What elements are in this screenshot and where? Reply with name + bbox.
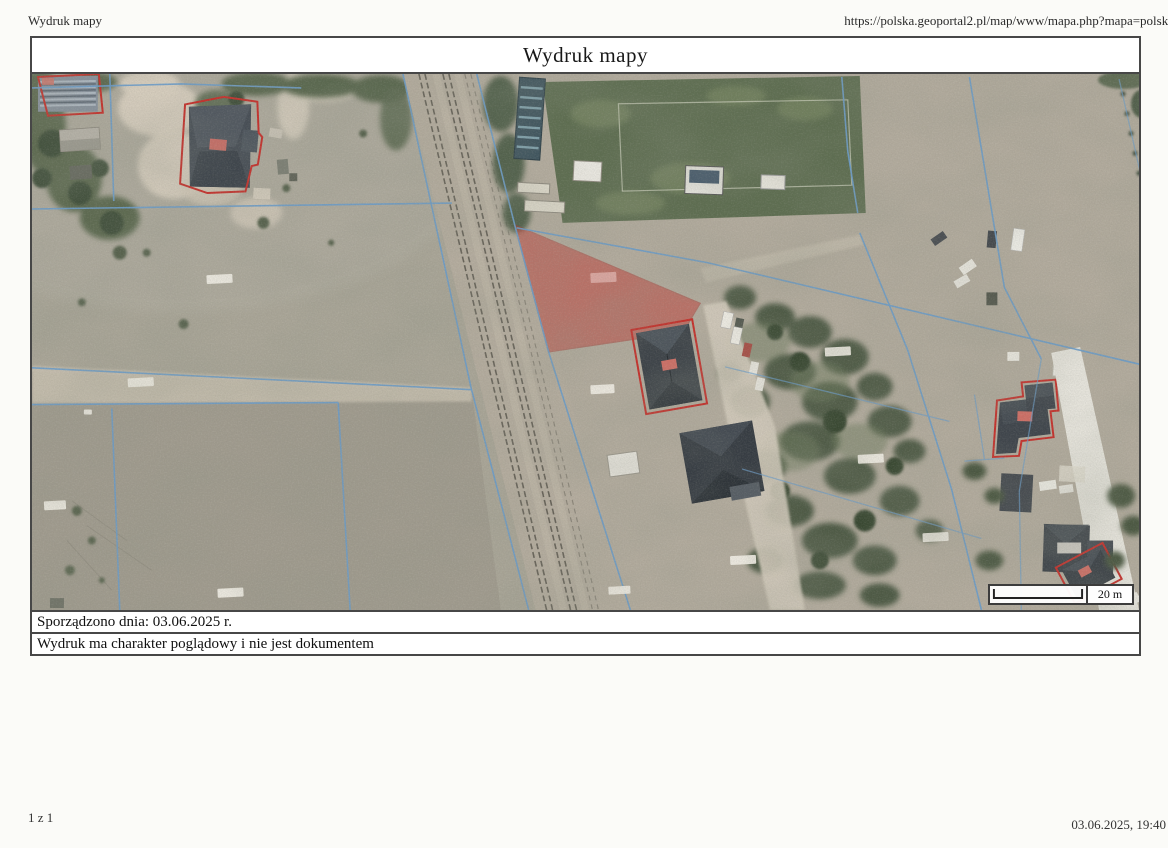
- photo-grain-light: [32, 74, 1139, 610]
- disclaimer-note: Wydruk ma charakter poglądowy i nie jest…: [32, 632, 1139, 654]
- page-indicator: 1 z 1: [28, 810, 53, 826]
- scale-bar-label: 20 m: [1086, 586, 1132, 603]
- scale-bar: 20 m: [988, 584, 1134, 605]
- map-print-frame: Wydruk mapy: [30, 36, 1141, 656]
- map-title: Wydruk mapy: [32, 38, 1139, 74]
- map-viewport[interactable]: 20 m: [32, 74, 1139, 610]
- print-header-url: https://polska.geoportal2.pl/map/www/map…: [844, 13, 1168, 29]
- printout-page: Wydruk mapy https://polska.geoportal2.pl…: [0, 0, 1168, 848]
- print-header-title: Wydruk mapy: [28, 13, 102, 29]
- print-datetime: 03.06.2025, 19:40: [1071, 817, 1166, 833]
- aerial-photo: [32, 74, 1139, 610]
- scale-bar-graphic: [990, 586, 1086, 603]
- prepared-date-note: Sporządzono dnia: 03.06.2025 r.: [32, 610, 1139, 632]
